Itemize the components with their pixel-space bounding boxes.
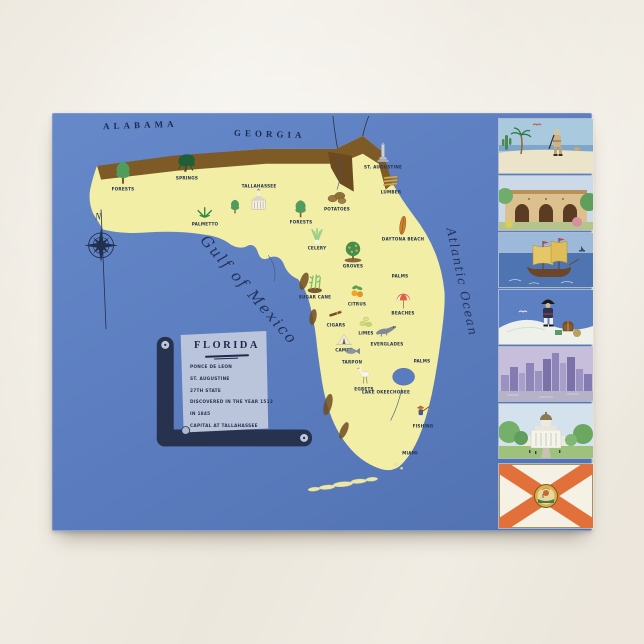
vignette-pirate-treasure <box>499 290 593 344</box>
map-icon-label: GROVES <box>343 263 363 268</box>
map-icon-label: EVERGLADES <box>371 341 404 346</box>
vignette-column <box>499 114 593 532</box>
tarpon-glyph <box>343 341 361 359</box>
map-icon-label: FORESTS <box>290 219 313 224</box>
tree-icon: FORESTS <box>290 199 313 224</box>
palm-icon: MIAMI <box>401 432 419 455</box>
palmetto-glyph <box>195 201 215 221</box>
bird-icon: EGRETS <box>353 364 375 391</box>
vignette-explorer-beach <box>499 119 593 173</box>
lumber-icon: LUMBER <box>381 169 402 194</box>
surfboard-icon: DAYTONA BEACH <box>382 214 424 241</box>
potatoes-glyph <box>326 184 348 206</box>
map-icon-label: FISHING <box>413 423 434 428</box>
tarpon-icon: TARPON <box>342 341 362 364</box>
palm-glyph <box>390 253 410 273</box>
scroll-fact-line: CAPITAL AT TALLAHASSEE <box>190 421 264 433</box>
map-icon-label: PALMETTO <box>192 221 219 226</box>
umbrella-icon: BEACHES <box>391 292 414 315</box>
map-icon-label: SUGAR CANE <box>299 294 331 299</box>
map-icon-label: PALMS <box>392 273 409 278</box>
state-capitol-scene <box>499 404 593 458</box>
map-icon-label: FORESTS <box>112 186 135 191</box>
lake-okeechobee <box>393 368 415 385</box>
tree-glyph <box>110 160 136 186</box>
scroll-fact-line: IN 1845 <box>190 409 264 421</box>
vignette-miami-skyline <box>499 347 593 401</box>
gator-icon: EVERGLADES <box>371 317 404 346</box>
map-icon-label: MIAMI <box>402 450 418 455</box>
monument-glyph <box>372 142 394 164</box>
scroll-fact-line: ST. AUGUSTINE <box>190 374 264 386</box>
cane-icon: SUGAR CANE <box>299 272 331 299</box>
scroll-fact-line: 27TH STATE <box>190 386 264 398</box>
scroll-fact-line: DISCOVERED IN THE YEAR 1513 <box>190 397 264 409</box>
miami-skyline-scene <box>499 347 593 401</box>
fisher-icon: FISHING <box>413 403 434 428</box>
map-icon-label: LUMBER <box>381 189 402 194</box>
church-icon: TALLAHASSEE <box>242 183 277 212</box>
scroll-fact-line: PONCE DE LEON <box>190 362 264 374</box>
map-icon-label: CELERY <box>308 245 327 250</box>
map-icon-label: SPRINGS <box>176 175 198 180</box>
legend-facts: PONCE DE LEONST. AUGUSTINE27TH STATEDISC… <box>190 362 264 433</box>
florida-flag <box>499 464 593 528</box>
vignette-state-capitol <box>499 404 593 458</box>
tree-icon: FORESTS <box>110 160 136 191</box>
gator-glyph <box>375 317 399 341</box>
pirate-treasure-scene <box>499 290 593 344</box>
map-icon-label: CITRUS <box>348 301 366 306</box>
church-glyph <box>247 189 271 213</box>
cigar-glyph <box>327 304 345 322</box>
galleon-scene <box>499 233 593 287</box>
palm-glyph <box>401 432 419 450</box>
map-icon-label: CIGARS <box>327 322 346 327</box>
mission-arches-scene <box>499 176 593 230</box>
potatoes-icon: POTATOES <box>324 184 350 211</box>
map-icon-label: POTATOES <box>324 206 350 211</box>
vignette-galleon <box>499 233 593 287</box>
weep-glyph <box>175 151 199 175</box>
monument-icon: ST. AUGUSTINE <box>364 142 402 169</box>
cane-glyph <box>304 272 326 294</box>
lake-okeechobee-label: LAKE OKEECHOBEE <box>362 389 410 394</box>
vignette-mission-arches <box>499 176 593 230</box>
fisher-glyph <box>413 403 433 423</box>
map-icon-label: ST. AUGUSTINE <box>364 164 402 169</box>
surfboard-glyph <box>392 214 414 236</box>
cigar-icon: CIGARS <box>327 304 346 327</box>
weep-icon: SPRINGS <box>175 151 199 180</box>
palm-icon: PALMS <box>413 340 431 363</box>
oranges-icon: CITRUS <box>347 281 367 306</box>
map-icon-label: LAKE OKEECHOBEE <box>362 389 410 394</box>
tree-glyph <box>291 199 311 219</box>
map-icon-label: PALMS <box>414 358 431 363</box>
oranges-glyph <box>347 281 367 301</box>
palmetto-icon: PALMETTO <box>192 201 219 226</box>
map-icon-label: DAYTONA BEACH <box>382 236 424 241</box>
celery-glyph <box>307 225 327 245</box>
map-icon-label: BEACHES <box>391 310 414 315</box>
legend-title: FLORIDA <box>183 340 271 351</box>
celery-icon: CELERY <box>307 225 327 250</box>
palm-icon: PALMS <box>390 253 410 278</box>
tree-glyph <box>227 199 243 215</box>
explorer-beach-scene <box>499 119 593 173</box>
vignette-state-flag <box>499 464 593 528</box>
umbrella-glyph <box>394 292 412 310</box>
bird-glyph <box>353 364 375 386</box>
lumber-glyph <box>381 169 401 189</box>
postcard: N ALABAMA GEORGIA Gulf of Mexico Atlanti… <box>52 113 592 531</box>
grove-icon: GROVES <box>341 239 365 268</box>
palm-glyph <box>413 340 431 358</box>
compass-north-letter: N <box>94 211 102 221</box>
grove-glyph <box>341 239 365 263</box>
photo-backdrop: { "postcard": { "region_labels": { "alab… <box>0 0 644 644</box>
tree-icon <box>227 199 243 215</box>
